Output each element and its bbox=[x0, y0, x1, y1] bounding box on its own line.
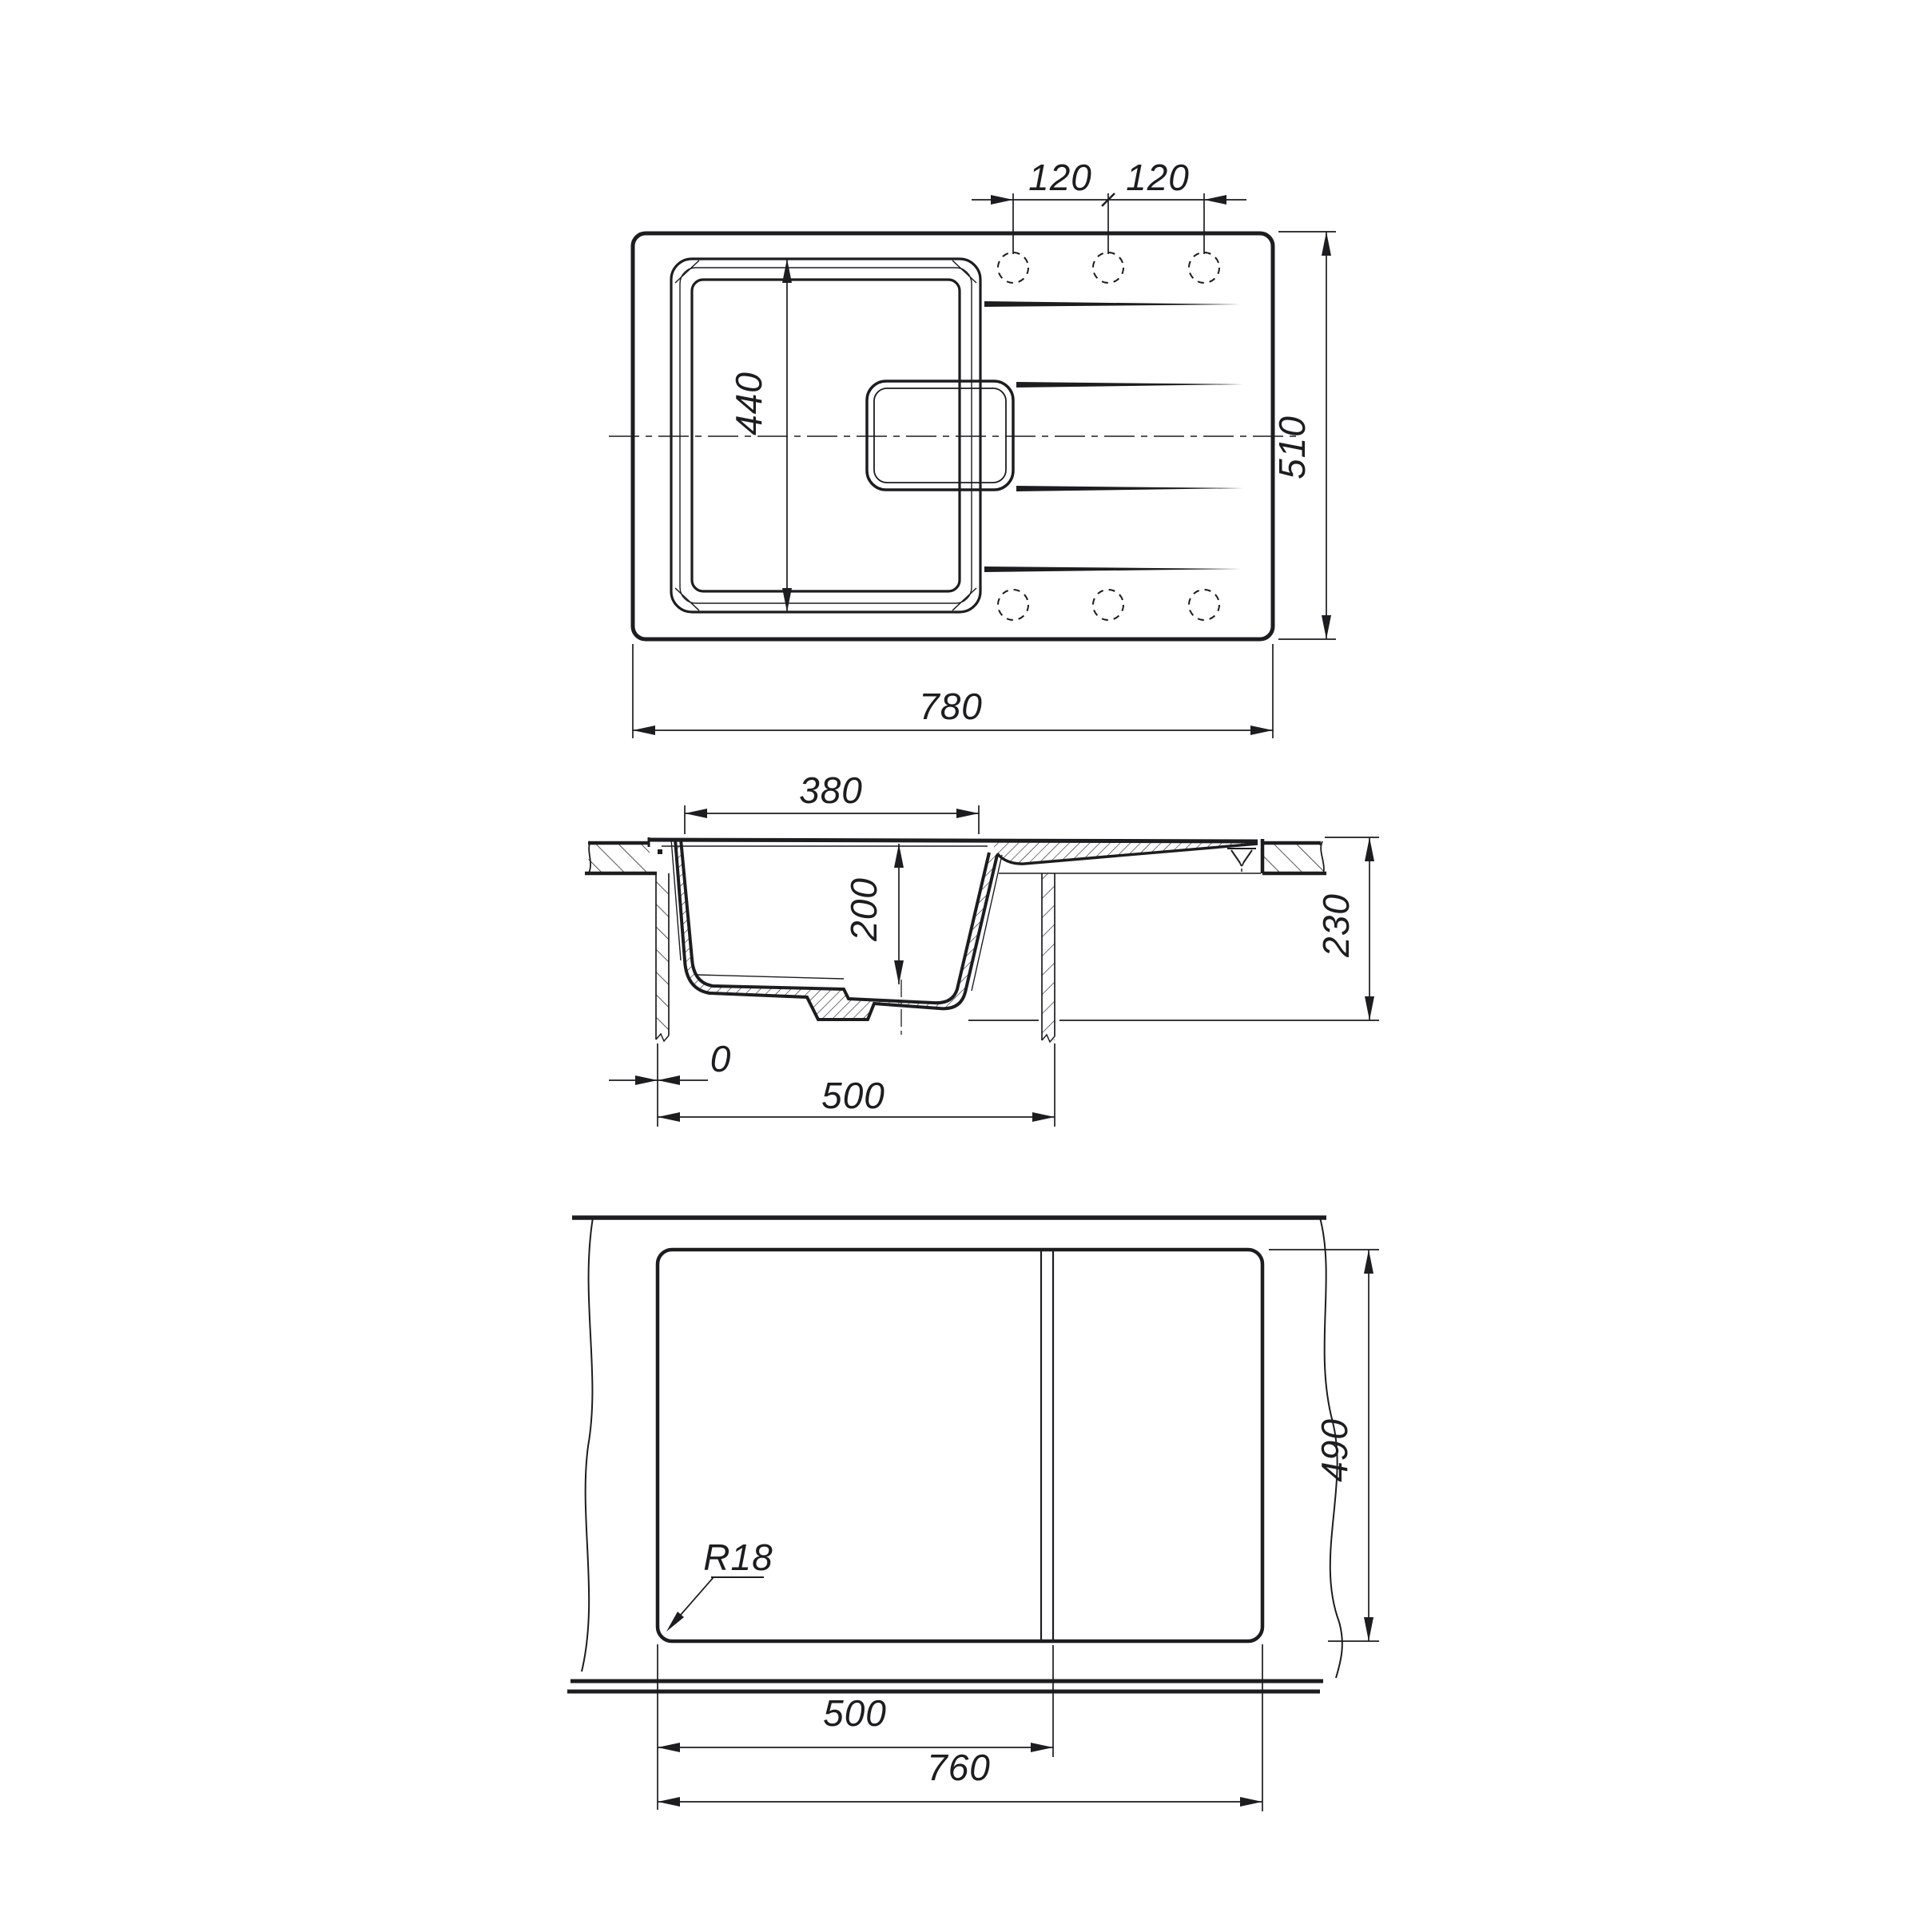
dim-label-490: 490 bbox=[1314, 1418, 1355, 1482]
dim-label-760: 760 bbox=[927, 1747, 991, 1788]
bowl-section bbox=[671, 839, 1002, 1039]
dim-label-120-left: 120 bbox=[1028, 157, 1092, 198]
dim-arrow bbox=[658, 1075, 680, 1085]
dim-overall-width: 780 bbox=[633, 644, 1273, 738]
dim-label-200: 200 bbox=[843, 877, 885, 942]
rim-seal-dot bbox=[658, 849, 662, 854]
board-inner bbox=[874, 388, 1006, 483]
mounting-clip bbox=[1227, 849, 1256, 872]
dim-label-500-cutout: 500 bbox=[823, 1692, 887, 1734]
dim-arrow bbox=[635, 1075, 658, 1085]
tap-hole-circle bbox=[1189, 590, 1219, 620]
dim-arrow bbox=[991, 195, 1013, 205]
dim-label-R18: R18 bbox=[703, 1536, 773, 1578]
dim-arrow bbox=[658, 1797, 680, 1807]
bowl-rim-middle bbox=[680, 268, 972, 603]
dim-cutout-depth: 490 bbox=[1269, 1250, 1379, 1641]
dim-arrow bbox=[894, 960, 904, 984]
dim-arrow bbox=[633, 725, 655, 735]
dim-arrow bbox=[1031, 1743, 1053, 1752]
dim-overall-depth: 510 bbox=[1271, 232, 1336, 639]
countertop-right bbox=[1262, 839, 1326, 875]
rim-top bbox=[649, 840, 1258, 841]
dim-bowl-depth: 200 bbox=[843, 844, 904, 984]
tap-hole-circle bbox=[1093, 252, 1123, 283]
dim-bowl-length: 440 bbox=[728, 259, 792, 612]
tap-hole-circle bbox=[1189, 252, 1219, 283]
dim-arrow bbox=[658, 1112, 680, 1122]
dim-arrow bbox=[1204, 195, 1226, 205]
dim-arrow bbox=[1032, 1112, 1055, 1122]
plan-board bbox=[867, 381, 1013, 490]
dim-cutout-width: 760 bbox=[658, 1644, 1262, 1811]
dim-label-780: 780 bbox=[919, 686, 983, 727]
dim-label-440: 440 bbox=[728, 372, 769, 435]
sink-technical-drawing: 120 120 440 510 780 bbox=[0, 0, 1932, 1932]
dim-arrow bbox=[1364, 1250, 1373, 1274]
groove bbox=[1016, 382, 1243, 388]
drainboard-hatch bbox=[991, 841, 1258, 864]
counter-break-left bbox=[582, 1218, 593, 1672]
dim-arrow bbox=[1365, 996, 1374, 1020]
plan-bowl bbox=[671, 259, 980, 612]
dim-arrow bbox=[782, 588, 792, 612]
drainboard-section bbox=[991, 841, 1258, 864]
dim-arrow bbox=[1240, 1797, 1262, 1807]
dim-label-120-right: 120 bbox=[1126, 157, 1190, 198]
dim-label-230: 230 bbox=[1315, 893, 1357, 958]
dim-arrow bbox=[1250, 725, 1273, 735]
drawing-sheet: 120 120 440 510 780 bbox=[0, 0, 1932, 1932]
cutout-outline bbox=[658, 1250, 1262, 1641]
dim-arrow bbox=[1364, 1617, 1373, 1641]
dim-arrow bbox=[1322, 232, 1331, 256]
dim-label-510: 510 bbox=[1271, 415, 1313, 479]
dim-arrow bbox=[956, 809, 979, 818]
radius-callout: R18 bbox=[666, 1536, 773, 1632]
groove bbox=[1016, 486, 1243, 491]
bowl-back-bottom-edge bbox=[697, 975, 844, 979]
countertop-left bbox=[585, 841, 657, 875]
cutout-view: R18 490 500 760 bbox=[567, 1218, 1379, 1811]
countertop-left-hatch bbox=[587, 843, 650, 873]
tap-hole-circle bbox=[998, 590, 1028, 620]
dim-label-500-section: 500 bbox=[821, 1075, 885, 1116]
tap-hole-circle bbox=[998, 252, 1028, 283]
dim-zero-offset: 0 bbox=[609, 1038, 731, 1088]
countertop-right-hatch bbox=[1264, 843, 1325, 873]
dim-label-0: 0 bbox=[710, 1038, 732, 1079]
board-outer bbox=[867, 381, 1013, 490]
dim-arrow bbox=[1322, 615, 1331, 639]
cabinet-wall-left bbox=[656, 873, 669, 1041]
cabinet-wall-right-hatch bbox=[1042, 873, 1055, 1040]
cabinet-wall-right bbox=[1042, 873, 1055, 1042]
bowl-rim-outer bbox=[671, 259, 980, 612]
tap-hole-circle bbox=[1093, 590, 1123, 620]
dim-arrow bbox=[1365, 837, 1374, 861]
dim-bowl-width: 380 bbox=[685, 769, 979, 834]
dim-bowl-cutout-width: 500 bbox=[658, 1644, 1053, 1810]
dim-arrow bbox=[685, 809, 707, 818]
plan-view: 120 120 440 510 780 bbox=[609, 157, 1336, 738]
cabinet-wall-left-hatch bbox=[656, 873, 669, 1040]
dim-arrow bbox=[658, 1743, 680, 1752]
dim-arrow bbox=[782, 259, 792, 283]
section-view: 380 200 230 0 bbox=[585, 769, 1379, 1127]
dim-label-380: 380 bbox=[799, 769, 863, 811]
groove bbox=[984, 566, 1241, 572]
dim-hole-pitch: 120 120 bbox=[972, 157, 1246, 254]
groove bbox=[984, 301, 1241, 307]
dim-arrow bbox=[894, 844, 904, 868]
